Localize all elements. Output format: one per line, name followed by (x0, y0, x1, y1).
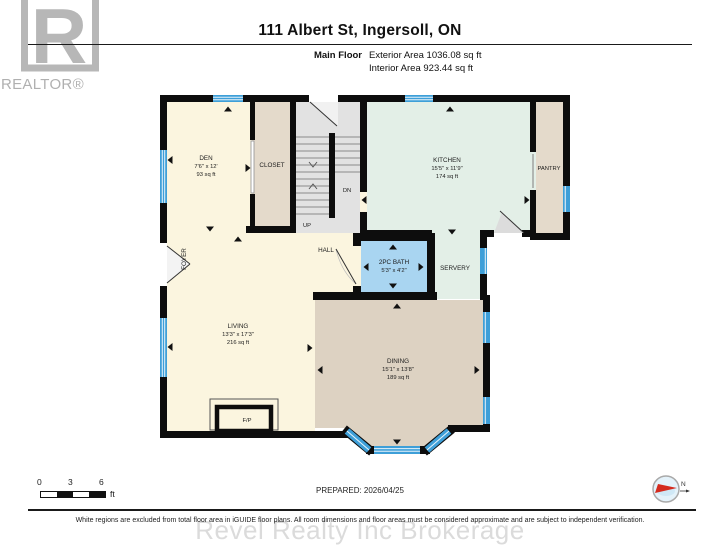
servery-label: SERVERY (440, 265, 471, 272)
living-label: LIVING (228, 323, 249, 330)
wall-closet-bottom (246, 226, 296, 233)
bath-label: 2PC BATH (379, 259, 410, 266)
fireplace (210, 399, 278, 431)
closet-label: CLOSET (259, 162, 284, 169)
kitchen-dims: 15'5" x 11'9" (431, 166, 462, 172)
window-dining-right-lower (483, 397, 490, 424)
window-den-left (160, 150, 167, 203)
closet-bifold-door (251, 141, 254, 193)
window-kitchen-top (405, 95, 433, 102)
wall-right-upper (563, 95, 570, 240)
disclaimer-text: White regions are excluded from total fl… (0, 517, 720, 524)
compass: N (648, 472, 696, 508)
living-dims: 13'3" x 17'3" (222, 332, 254, 338)
window-pantry-right (563, 186, 570, 212)
stair-stringer (329, 133, 335, 218)
footer-divider (28, 509, 696, 511)
bath-dims: 5'3" x 4'2" (381, 268, 406, 274)
window-living-left (160, 318, 167, 377)
front-door-gap (160, 243, 167, 286)
floor-plan: DEN 7'6" x 12' 93 sq ft CLOSET KITCHEN 1… (0, 0, 720, 556)
den-dims: 7'6" x 12' (194, 164, 217, 170)
wall-pantry-divider-a (530, 95, 536, 152)
floorplan-page: R REALTOR® 111 Albert St, Ingersoll, ON … (0, 0, 720, 556)
wall-dining-corner (448, 425, 490, 432)
north-label: N (681, 481, 686, 488)
dining-dims: 15'1" x 13'8" (382, 367, 414, 373)
hall-label: HALL (318, 247, 334, 254)
window-den-top (213, 95, 243, 102)
kitchen-area: 174 sq ft (436, 174, 459, 180)
prepared-date: PREPARED: 2026/04/25 (0, 486, 720, 495)
wall-den-closet-a (250, 98, 255, 140)
pantry-label: PANTRY (538, 166, 561, 172)
window-servery-right (480, 248, 487, 274)
wall-kitchen-a (360, 95, 367, 192)
kitchen-label: KITCHEN (433, 157, 461, 164)
dining-label: DINING (387, 358, 409, 365)
wall-closet-stairs (290, 98, 296, 233)
den-area: 93 sq ft (196, 172, 215, 178)
fireplace-label: F/P (242, 418, 251, 424)
window-dining-right-upper (483, 312, 490, 343)
window-bay-bottom (374, 446, 420, 454)
stairs-up-label: UP (303, 223, 311, 229)
wall-pantry-divider-b (530, 190, 536, 240)
stairs-dn-label: DN (343, 188, 351, 194)
living-area: 216 sq ft (227, 340, 250, 346)
north-arrow-head (686, 490, 690, 493)
den-label: DEN (199, 155, 213, 162)
foyer-label: FOYER (181, 248, 188, 270)
dining-area: 189 sq ft (387, 375, 410, 381)
side-entry-gap (309, 95, 338, 102)
